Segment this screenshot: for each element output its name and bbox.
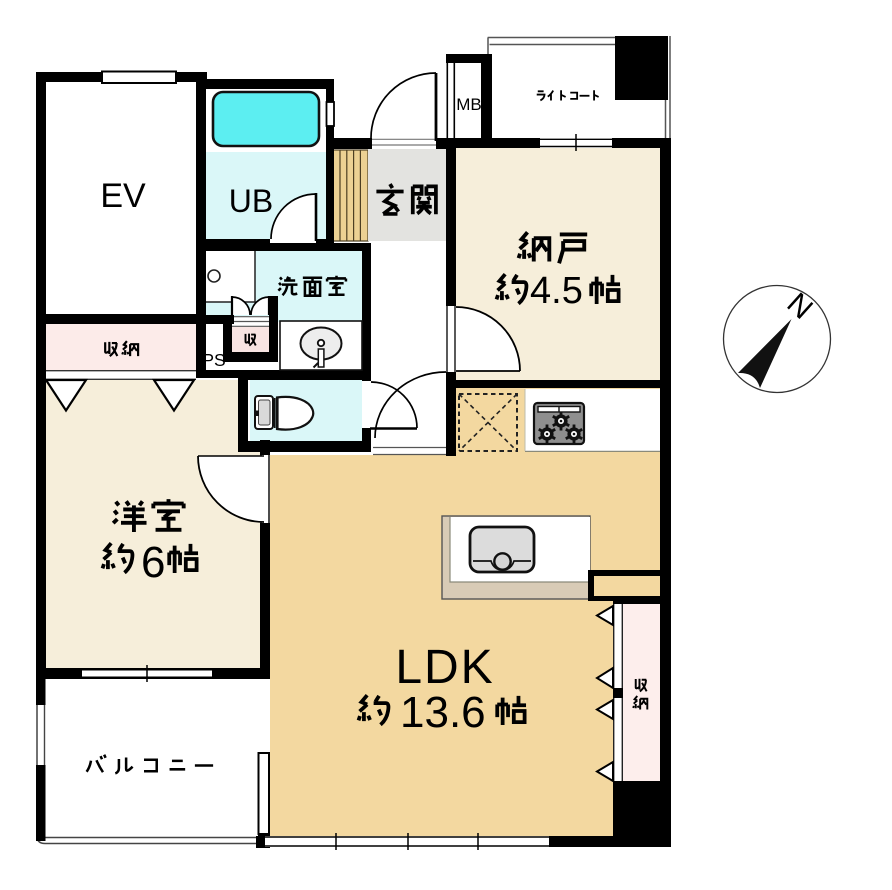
svg-text:6: 6	[141, 538, 165, 587]
svg-text:PS: PS	[202, 350, 225, 370]
svg-text:13.6: 13.6	[400, 688, 486, 737]
svg-text:MB: MB	[456, 95, 482, 114]
svg-text:4.5: 4.5	[530, 270, 583, 312]
svg-text:LDK: LDK	[395, 641, 494, 694]
svg-text:UB: UB	[229, 183, 273, 219]
svg-text:EV: EV	[100, 177, 146, 215]
